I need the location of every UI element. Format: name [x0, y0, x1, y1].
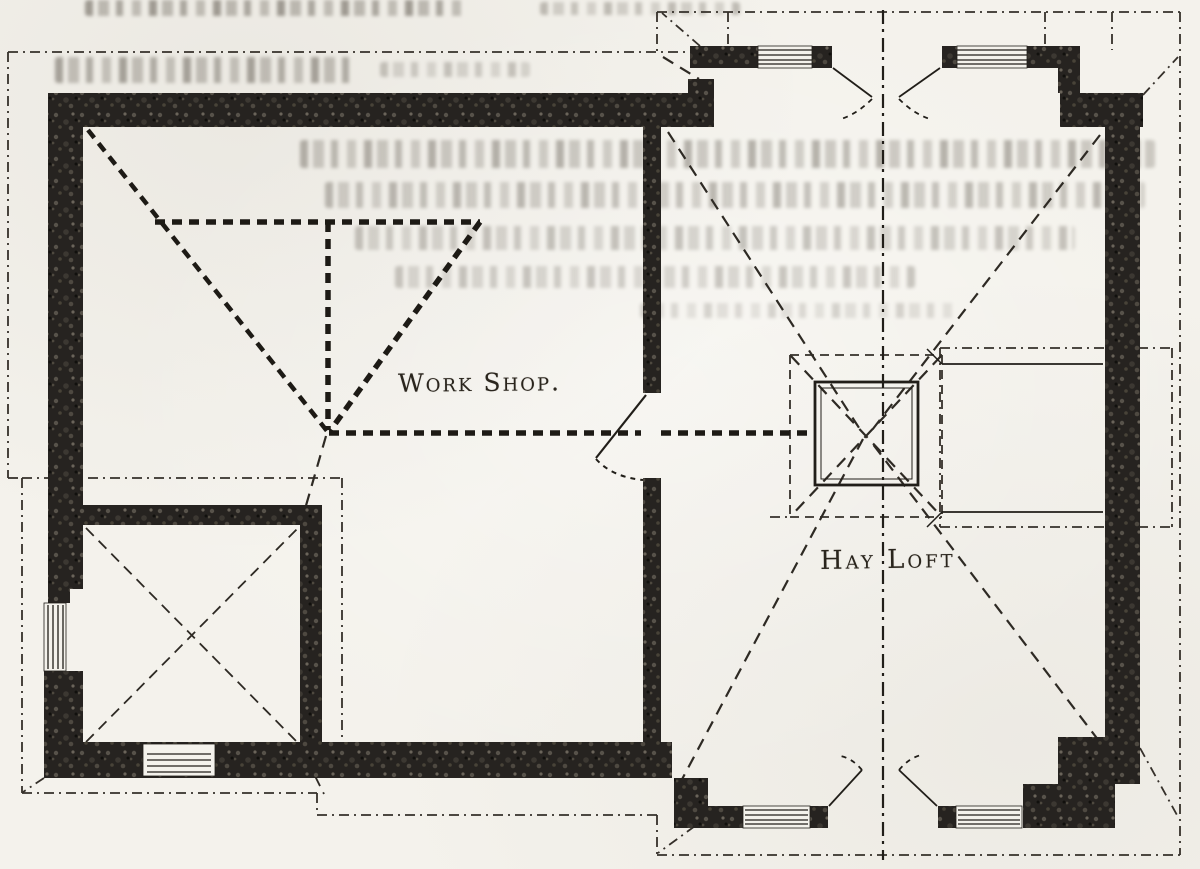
workshop-west-wall-lower	[44, 671, 83, 743]
window-barn-north-west	[758, 46, 812, 68]
barn-east-wall	[1105, 127, 1140, 739]
door-swing-arc	[841, 99, 872, 119]
window-barn-south-west	[743, 806, 810, 828]
hay-chute	[815, 349, 1103, 527]
chute-square-outer	[815, 382, 918, 485]
stair-room-north-wall	[80, 505, 322, 525]
window-workshop-west	[44, 603, 66, 671]
barn-ne-corner-pier	[1058, 46, 1080, 93]
door-leaf	[829, 770, 862, 806]
workshop-south-wall	[44, 742, 672, 778]
door-swing-arc	[596, 459, 643, 480]
door-partition	[596, 395, 646, 480]
hay-loft-label: Hay Loft	[820, 544, 956, 576]
door-leaf	[596, 395, 646, 458]
workshop-north-wall	[48, 93, 712, 127]
floor-plan: Work Shop. Hay Loft	[0, 0, 1200, 869]
workshop-west-wall-upper	[48, 93, 83, 589]
workshop-west-wall-stub	[48, 589, 70, 603]
barn-north-wall-seg	[812, 46, 832, 68]
door-leaf	[899, 770, 937, 806]
barn-ne-corner-pier	[1060, 93, 1143, 127]
floor-plan-linework	[0, 0, 1200, 869]
door-swing-arc	[840, 756, 862, 770]
workshop-label: Work Shop.	[398, 367, 561, 397]
barn-south-wall-seg	[810, 806, 828, 828]
door-barn-north-double	[833, 68, 940, 119]
junction-step-wall	[674, 778, 708, 828]
barn-se-corner-pier	[1058, 737, 1140, 784]
junction-pier	[688, 79, 714, 127]
partition-wall-lower	[643, 478, 661, 744]
door-leaf	[899, 68, 940, 97]
windows	[44, 46, 1027, 828]
barn-south-wall-seg	[704, 806, 743, 828]
barn-se-corner-pier	[1023, 784, 1115, 828]
stair-room-east-wall	[300, 505, 322, 744]
door-swing-arc	[899, 99, 930, 119]
window-stair-room-south	[143, 744, 215, 776]
walls	[44, 46, 1143, 828]
door-leaf	[833, 68, 872, 97]
door-swing-arc	[899, 755, 921, 770]
window-barn-south-east	[956, 806, 1022, 828]
window-barn-north-east	[957, 46, 1027, 68]
barn-north-wall-seg	[942, 46, 957, 68]
roof-hip-lines	[301, 57, 1100, 785]
partition-wall-upper	[643, 127, 661, 393]
barn-north-wall-seg	[690, 46, 758, 68]
barn-south-wall-seg	[938, 806, 956, 828]
